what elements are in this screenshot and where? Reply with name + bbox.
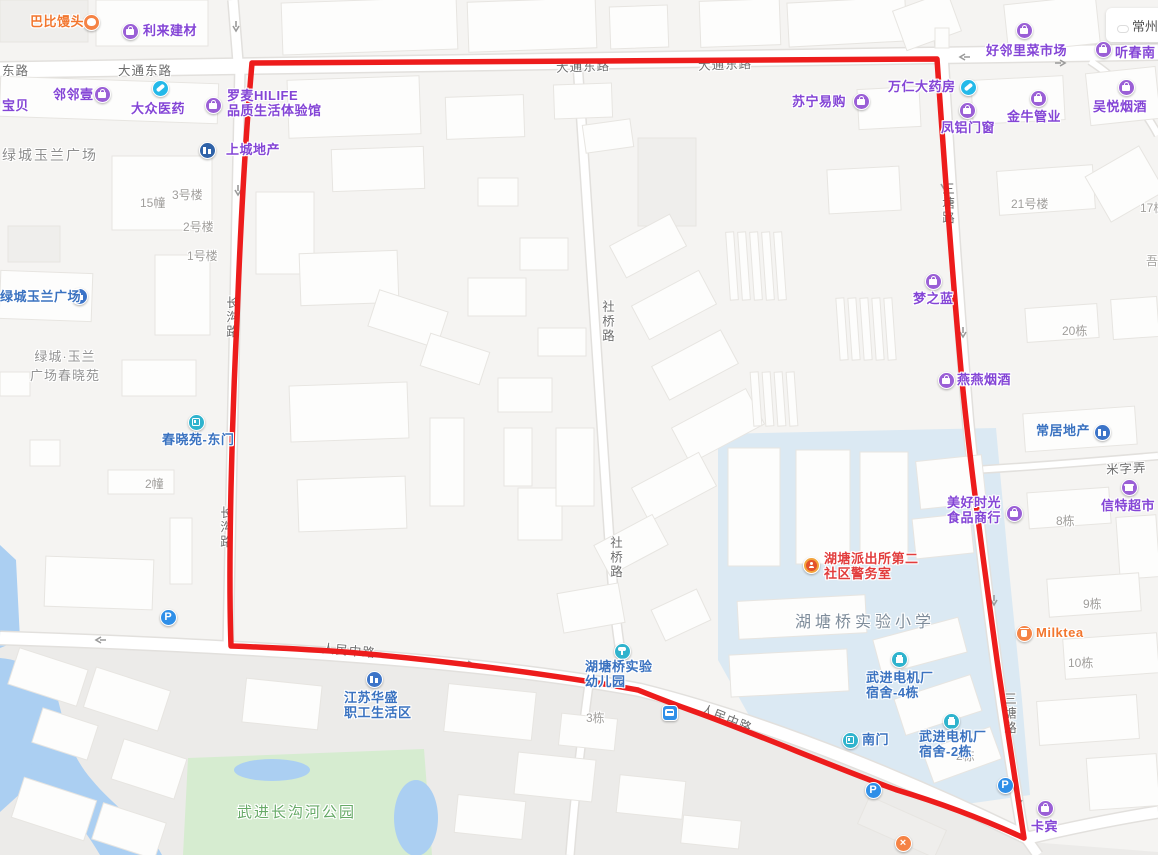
cup-glyph: [1021, 630, 1027, 637]
poi-label-wanren-dayaofang[interactable]: 万仁大药房: [888, 79, 956, 94]
fenglv-menchuang-icon[interactable]: [959, 102, 976, 119]
poi-label-jiangsu-huasheng[interactable]: 江苏华盛职工生活区: [344, 690, 412, 720]
police-glyph: [806, 560, 817, 571]
suning-yigou-icon[interactable]: [853, 93, 870, 110]
poi-label-tingchun[interactable]: 听春南: [1115, 45, 1156, 60]
bag-glyph: [1099, 47, 1107, 53]
bldg-glyph: [948, 719, 955, 725]
poi-label-line: 苏宁易购: [792, 94, 846, 109]
poi-label-line: 万仁大药房: [888, 79, 956, 94]
poi-label-line: 食品商行: [947, 510, 1001, 525]
bus-glyph: [665, 709, 674, 716]
poi-label-line: 燕燕烟酒: [957, 372, 1011, 387]
bldg-glyph: [896, 657, 903, 663]
lilai-jiancai-icon[interactable]: [122, 23, 139, 40]
shangcheng-dichan-icon[interactable]: [199, 142, 216, 159]
poi-label-line: 南门: [862, 732, 889, 747]
poi-label-fenglv-menchuang[interactable]: 凤铝门窗: [941, 120, 995, 135]
poi-label-milktea[interactable]: Milktea: [1036, 625, 1084, 640]
poi-label-meihao-shiguang[interactable]: 美好时光食品商行: [947, 495, 1001, 525]
bag-glyph: [857, 99, 865, 105]
bag-glyph: [126, 29, 134, 35]
gate-glyph: [846, 736, 854, 744]
weather-widget[interactable]: 常州: [1106, 8, 1158, 42]
poi-label-line: 梦之蓝: [913, 291, 954, 306]
poi-label-lilai-jiancai[interactable]: 利来建材: [143, 23, 197, 38]
parking-letter: P: [164, 611, 171, 623]
meihao-shiguang-icon[interactable]: [1006, 505, 1023, 522]
bag-glyph: [98, 92, 106, 98]
poi-label-shangcheng-dichan[interactable]: 上城地产: [226, 142, 280, 157]
wanren-dayaofang-icon[interactable]: [960, 79, 977, 96]
chunxiaoyuan-east-gate-icon[interactable]: [188, 414, 205, 431]
hutangqiao-kindergarten-icon[interactable]: [614, 643, 631, 660]
haolinli-market-icon[interactable]: [1016, 22, 1033, 39]
poi-label-line: 吴悦烟酒: [1093, 99, 1147, 114]
poi-label-line: 美好时光: [947, 495, 1001, 510]
poi-label-wujin-dorm-2[interactable]: 武进电机厂宿舍-2栋: [919, 729, 987, 759]
pill-glyph: [963, 83, 972, 92]
luomai-hilife-icon[interactable]: [205, 97, 222, 114]
poi-label-line: 春晓苑-东门: [162, 432, 234, 447]
poi-label-wuyue-yanjiu[interactable]: 吴悦烟酒: [1093, 99, 1147, 114]
poi-label-suning-yigou[interactable]: 苏宁易购: [792, 94, 846, 109]
jinniu-guanye-icon[interactable]: [1030, 90, 1047, 107]
poi-label-wujin-dorm-4[interactable]: 武进电机厂宿舍-4栋: [866, 670, 934, 700]
hutang-police-station-icon[interactable]: [803, 557, 820, 574]
closed-marker-icon[interactable]: ×: [895, 835, 912, 852]
poi-label-kabin[interactable]: 卡宾: [1031, 819, 1058, 834]
xinte-chaoshi-icon[interactable]: [1121, 479, 1138, 496]
bag-glyph: [1020, 28, 1028, 34]
poi-label-line: 社区警务室: [824, 566, 919, 581]
mengzhilan-icon[interactable]: [925, 273, 942, 290]
parking-west-icon[interactable]: P: [160, 609, 177, 626]
poi-label-dazhong-yiyao[interactable]: 大众医药: [131, 101, 185, 116]
poi-label-line: 江苏华盛: [344, 690, 412, 705]
poi-label-line: Milktea: [1036, 625, 1084, 640]
bag-glyph: [1041, 806, 1049, 812]
poi-label-line: 宝贝: [2, 98, 29, 113]
bus-stop-icon[interactable]: [662, 705, 678, 721]
sprout-glyph: [621, 650, 623, 655]
x-glyph: ×: [900, 837, 906, 849]
poi-label-line: 凤铝门窗: [941, 120, 995, 135]
poi-label-line: 常居地产: [1036, 423, 1090, 438]
poi-label-line: 武进电机厂: [919, 729, 987, 744]
linlinyi-icon[interactable]: [94, 86, 111, 103]
shop-glyph: [1125, 486, 1133, 491]
poi-label-line: 绿城玉兰广场: [0, 289, 81, 304]
wuyue-yanjiu-icon[interactable]: [1118, 79, 1135, 96]
bag-glyph: [1122, 85, 1130, 91]
kabin-icon[interactable]: [1037, 800, 1054, 817]
poi-label-line: 听春南: [1115, 45, 1156, 60]
jiangsu-huasheng-icon[interactable]: [366, 671, 383, 688]
poi-label-line: 品质生活体验馆: [227, 103, 322, 118]
yanyan-yanjiu-icon[interactable]: [938, 372, 955, 389]
changju-dichan-icon[interactable]: [1094, 424, 1111, 441]
dazhong-yiyao-icon[interactable]: [152, 80, 169, 97]
estate-glyph: [1098, 429, 1102, 436]
poi-label-xinte-chaoshi[interactable]: 信特超市: [1101, 498, 1155, 513]
bag-glyph: [929, 279, 937, 285]
poi-label-hutangqiao-kindergarten[interactable]: 湖塘桥实验幼儿园: [585, 659, 653, 689]
poi-label-line: 巴比馒头: [30, 14, 84, 29]
bag-glyph: [942, 378, 950, 384]
poi-label-line: 卡宾: [1031, 819, 1058, 834]
parking-letter: P: [1001, 779, 1008, 791]
wujin-dorm-4-icon[interactable]: [891, 651, 908, 668]
bag-glyph: [1034, 96, 1042, 102]
pill-glyph: [155, 84, 164, 93]
poi-label-line: 宿舍-2栋: [919, 744, 987, 759]
poi-label-line: 大众医药: [131, 101, 185, 116]
poi-label-line: 上城地产: [226, 142, 280, 157]
poi-label-baobei[interactable]: 宝贝: [2, 98, 29, 113]
poi-label-mengzhilan[interactable]: 梦之蓝: [913, 291, 954, 306]
estate-glyph: [370, 676, 374, 683]
parking-letter: P: [869, 784, 876, 796]
poi-label-line: 武进电机厂: [866, 670, 934, 685]
parking-south-icon[interactable]: P: [865, 782, 882, 799]
poi-label-line: 湖塘桥实验: [585, 659, 653, 674]
map-canvas[interactable]: 东路大通东路大通东路大通东路社桥路社桥路长沟路长沟路三塘路三塘路人民中路人民中路…: [0, 0, 1158, 855]
poi-label-south-gate[interactable]: 南门: [862, 732, 889, 747]
poi-label-line: 宿舍-4栋: [866, 685, 934, 700]
poi-label-babi-mantou[interactable]: 巴比馒头: [30, 14, 84, 29]
bag-glyph: [209, 103, 217, 109]
poi-label-line: 利来建材: [143, 23, 197, 38]
bag-glyph: [963, 108, 971, 114]
estate-glyph: [203, 147, 207, 154]
tingchun-icon[interactable]: [1095, 41, 1112, 58]
weather-icon: [1114, 19, 1126, 31]
weather-city: 常州: [1132, 16, 1158, 35]
poi-label-linlinyi[interactable]: 邻邻壹: [53, 87, 94, 102]
poi-label-line: 幼儿园: [585, 674, 653, 689]
poi-label-jinniu-guanye[interactable]: 金牛管业: [1007, 109, 1061, 124]
poi-label-line: 信特超市: [1101, 498, 1155, 513]
poi-label-line: 好邻里菜市场: [986, 43, 1067, 58]
poi-label-lvcheng-yulan-plaza[interactable]: 绿城玉兰广场: [0, 289, 81, 304]
poi-label-luomai-hilife[interactable]: 罗麦HILIFE品质生活体验馆: [227, 88, 322, 118]
wujin-dorm-2-icon[interactable]: [943, 713, 960, 730]
bag-glyph: [1010, 511, 1018, 517]
poi-label-changju-dichan[interactable]: 常居地产: [1036, 423, 1090, 438]
poi-label-chunxiaoyuan-east-gate[interactable]: 春晓苑-东门: [162, 432, 234, 447]
poi-label-line: 湖塘派出所第二: [824, 551, 919, 566]
poi-label-line: 职工生活区: [344, 705, 412, 720]
south-gate-icon[interactable]: [842, 732, 859, 749]
bun-glyph: [87, 18, 96, 26]
poi-label-yanyan-yanjiu[interactable]: 燕燕烟酒: [957, 372, 1011, 387]
poi-label-line: 金牛管业: [1007, 109, 1061, 124]
poi-label-line: 罗麦HILIFE: [227, 88, 322, 103]
poi-label-line: 邻邻壹: [53, 87, 94, 102]
milktea-icon[interactable]: [1016, 625, 1033, 642]
poi-label-haolinli-market[interactable]: 好邻里菜市场: [986, 43, 1067, 58]
gate-glyph: [192, 418, 200, 426]
parking-southeast-icon[interactable]: P: [997, 777, 1014, 794]
poi-label-hutang-police-station[interactable]: 湖塘派出所第二社区警务室: [824, 551, 919, 581]
babi-mantou-icon[interactable]: [83, 14, 100, 31]
